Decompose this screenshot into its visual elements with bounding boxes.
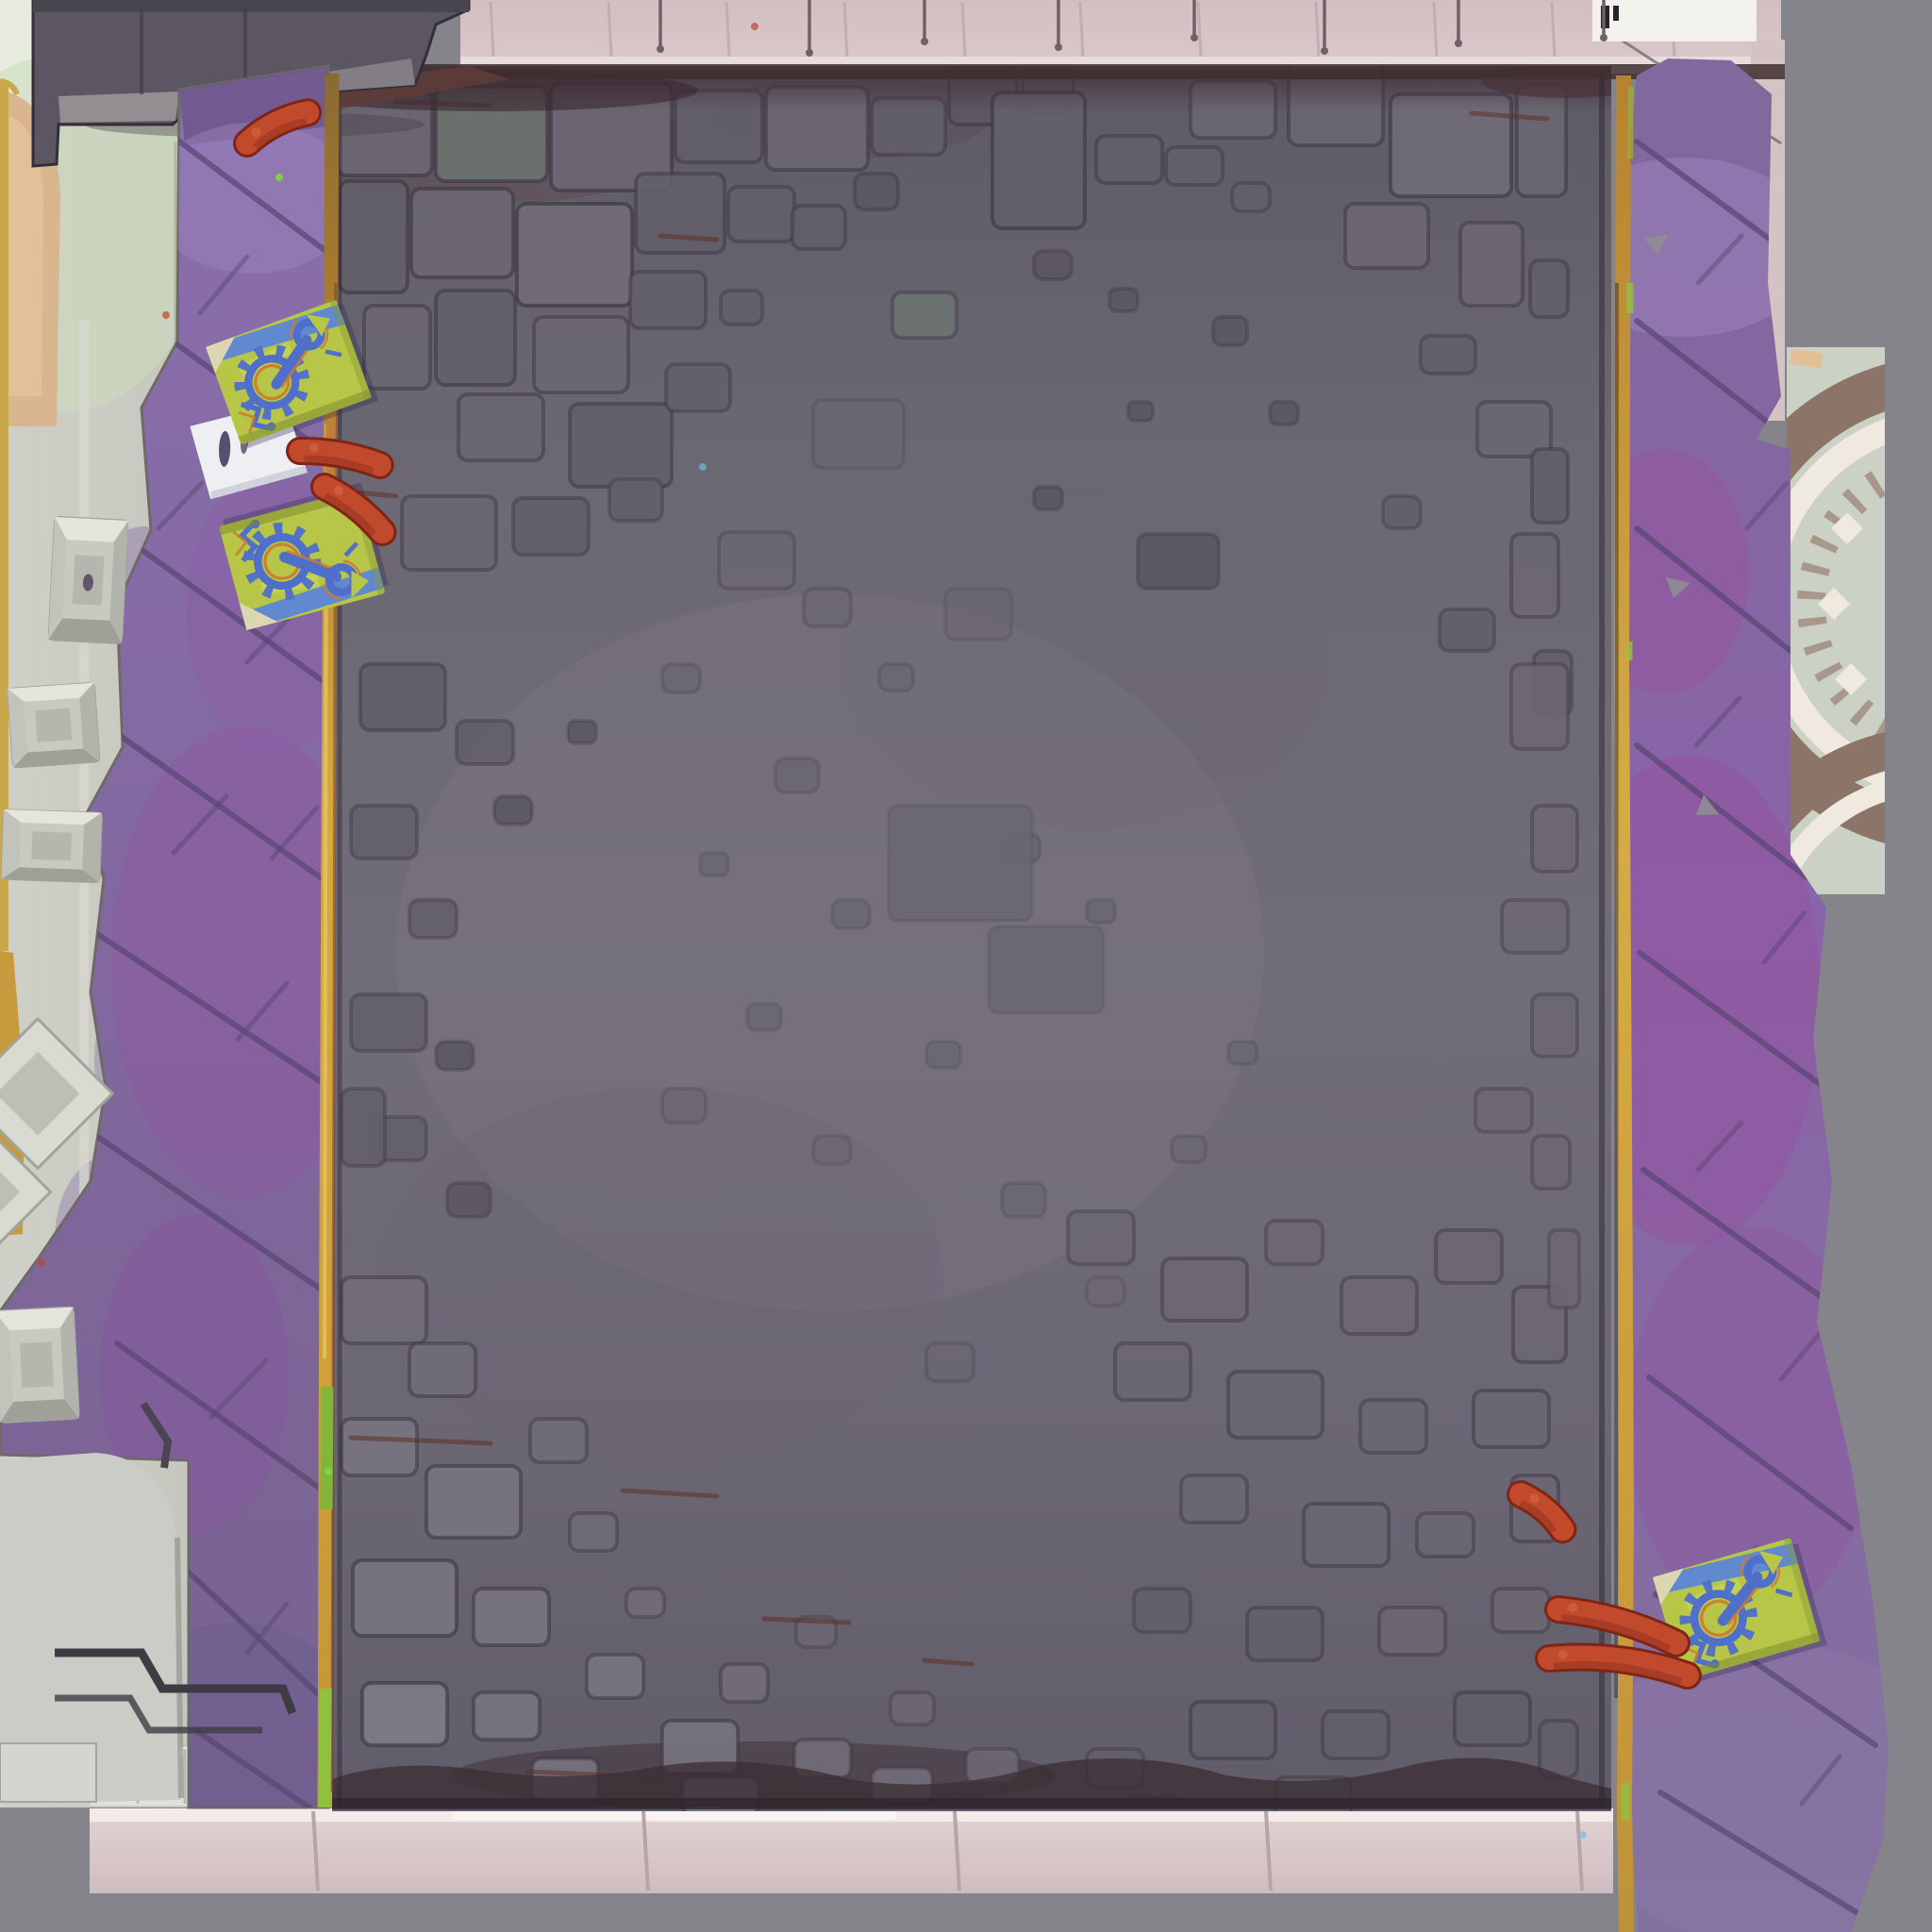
cobblestone bbox=[1440, 609, 1494, 651]
cobblestone bbox=[700, 853, 728, 875]
cobblestone bbox=[1002, 1183, 1045, 1217]
cobblestone bbox=[1034, 487, 1062, 509]
cobblestone bbox=[1455, 1692, 1530, 1745]
cobblestone bbox=[989, 926, 1104, 1013]
game-arena-texture: Top-down painted game arena tile: gray c… bbox=[0, 0, 1932, 1932]
cobblestone bbox=[1540, 1721, 1577, 1777]
cyan-speck bbox=[1579, 1831, 1587, 1839]
cobblestone bbox=[530, 1419, 587, 1462]
planter-basin bbox=[48, 517, 128, 643]
cobblestone bbox=[1270, 402, 1298, 425]
cobblestone bbox=[1304, 1504, 1389, 1566]
cobblestone bbox=[992, 92, 1085, 228]
cobblestone bbox=[570, 1513, 617, 1551]
cobblestone bbox=[1436, 1230, 1502, 1283]
cobblestone bbox=[474, 1692, 540, 1740]
wire-end bbox=[921, 38, 928, 45]
wire-end bbox=[1600, 34, 1607, 42]
cobblestone bbox=[402, 496, 496, 570]
cobblestone bbox=[447, 1183, 491, 1217]
planter-basin bbox=[1, 809, 102, 883]
cobblestone bbox=[341, 1419, 417, 1475]
cobblestone bbox=[587, 1655, 643, 1698]
cobblestone bbox=[1096, 136, 1162, 183]
cobblestone bbox=[721, 291, 762, 325]
cobblestone bbox=[775, 758, 819, 792]
cobblestone bbox=[351, 806, 417, 858]
cobblestone bbox=[1475, 1089, 1532, 1132]
cobblestone bbox=[892, 292, 957, 338]
cobblestone bbox=[1232, 183, 1270, 211]
cobblestone bbox=[662, 1089, 706, 1123]
wire-end bbox=[1455, 40, 1462, 47]
cobblestone bbox=[855, 174, 898, 209]
cobblestone bbox=[1474, 1391, 1549, 1447]
red-speck bbox=[751, 23, 758, 30]
cobblestone bbox=[1166, 147, 1223, 185]
cobblestone bbox=[1087, 1277, 1124, 1306]
green-speck bbox=[325, 1468, 332, 1475]
cobblestone bbox=[719, 532, 794, 589]
cobblestone bbox=[340, 181, 408, 292]
cobblestone bbox=[1360, 1400, 1426, 1453]
cobblestone bbox=[1191, 1702, 1275, 1758]
cobblestone bbox=[1383, 496, 1421, 528]
cobblestone bbox=[1323, 1711, 1389, 1758]
cobblestone bbox=[813, 1136, 851, 1164]
cobblestone bbox=[1213, 317, 1247, 345]
cobblestone bbox=[926, 1041, 960, 1068]
cobblestone bbox=[879, 664, 913, 691]
cyan-speck bbox=[699, 463, 707, 471]
arena-scene-canvas bbox=[0, 0, 1932, 1932]
cobblestone bbox=[409, 1343, 475, 1396]
cobblestone bbox=[1417, 1513, 1474, 1557]
cobblestone bbox=[891, 1692, 934, 1724]
paint-wash bbox=[840, 491, 1330, 830]
cobblestone bbox=[1109, 289, 1138, 311]
cobblestone bbox=[792, 206, 845, 249]
cobblestone bbox=[1228, 1372, 1323, 1438]
cobblestone bbox=[1162, 1258, 1247, 1321]
cobblestone bbox=[1421, 336, 1475, 374]
cobblestone bbox=[570, 404, 672, 487]
wire-end bbox=[1191, 34, 1198, 42]
cobblestone bbox=[1511, 534, 1558, 617]
top-shadow-line bbox=[319, 64, 1785, 79]
cobblestone bbox=[1247, 1607, 1323, 1660]
cobblestone bbox=[926, 1343, 974, 1381]
cobblestone bbox=[426, 1466, 521, 1538]
cobblestone bbox=[1492, 1589, 1549, 1632]
cobblestone bbox=[494, 796, 532, 824]
cobblestone bbox=[436, 1041, 474, 1070]
cobblestone bbox=[364, 306, 430, 389]
cobblestone bbox=[341, 1277, 426, 1343]
cobblestone bbox=[1087, 900, 1115, 923]
wire-end bbox=[806, 49, 813, 57]
cobblestone bbox=[626, 1589, 664, 1617]
cobblestone bbox=[457, 721, 513, 764]
wire-end bbox=[657, 45, 664, 53]
paint-wash bbox=[377, 1087, 943, 1464]
cobblestone bbox=[353, 1560, 457, 1636]
cobblestone bbox=[360, 664, 445, 730]
cobblestone bbox=[1532, 806, 1577, 872]
cobblestone bbox=[1266, 1221, 1323, 1264]
cobblestone bbox=[813, 400, 904, 468]
cobblestone bbox=[1034, 251, 1072, 279]
cobblestone bbox=[341, 1089, 385, 1166]
cobblestone bbox=[1172, 1136, 1206, 1162]
cobblestone bbox=[1341, 1277, 1417, 1334]
cobblestone bbox=[351, 994, 426, 1051]
cobblestone bbox=[534, 317, 628, 392]
cobblestone bbox=[1530, 260, 1568, 317]
cobblestone bbox=[609, 479, 662, 521]
cobblestone bbox=[1511, 664, 1568, 749]
cobblestone bbox=[1460, 223, 1523, 306]
cobblestone bbox=[1115, 1343, 1191, 1400]
wire-end bbox=[1321, 47, 1328, 55]
wire-end bbox=[1055, 43, 1062, 51]
cobblestone bbox=[458, 394, 543, 460]
cobblestone bbox=[411, 189, 513, 277]
cobblestone bbox=[517, 204, 632, 306]
cobblestone bbox=[1068, 1211, 1134, 1264]
cobblestone bbox=[513, 498, 589, 555]
planter-basin bbox=[8, 683, 100, 768]
cobblestone bbox=[568, 721, 596, 743]
cobblestone bbox=[728, 187, 794, 241]
red-speck bbox=[38, 1258, 45, 1266]
cobblestone bbox=[1532, 994, 1577, 1057]
cobblestone bbox=[1138, 534, 1219, 589]
cobblestone-court bbox=[283, 62, 1651, 1819]
cobblestone bbox=[1181, 1475, 1247, 1523]
red-speck bbox=[162, 311, 170, 319]
cobblestone bbox=[804, 589, 851, 626]
cobblestone bbox=[630, 272, 706, 328]
cobblestone bbox=[1502, 900, 1568, 953]
planter-basin bbox=[0, 1307, 79, 1423]
moss-on-gold bbox=[326, 1387, 327, 1509]
green-speck bbox=[275, 174, 283, 181]
cobblestone bbox=[1134, 1589, 1191, 1632]
light-step-plate bbox=[0, 1743, 96, 1802]
cobblestone bbox=[362, 1683, 447, 1745]
cobblestone bbox=[409, 900, 457, 938]
cobblestone bbox=[721, 1664, 768, 1702]
cobblestone bbox=[832, 900, 870, 928]
cobblestone bbox=[1379, 1607, 1445, 1655]
cobblestone bbox=[1532, 1136, 1570, 1189]
cobblestone bbox=[1345, 204, 1428, 268]
cobblestone bbox=[945, 589, 1011, 640]
cobblestone bbox=[1228, 1041, 1257, 1064]
cobblestone bbox=[1128, 402, 1153, 421]
cobblestone bbox=[1532, 449, 1568, 523]
cobblestone bbox=[747, 1004, 781, 1030]
cobblestone bbox=[662, 664, 700, 692]
cobblestone bbox=[1549, 1230, 1579, 1307]
cobblestone bbox=[666, 364, 730, 411]
cobblestone bbox=[889, 806, 1032, 921]
cobblestone bbox=[436, 291, 515, 385]
cobblestone bbox=[474, 1589, 549, 1645]
